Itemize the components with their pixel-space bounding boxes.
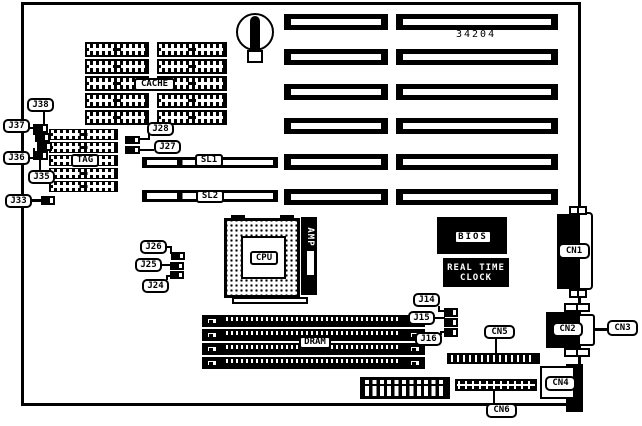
amp-strip-window [306, 250, 315, 276]
jumper-j14 [444, 308, 458, 317]
cn6-header [455, 379, 537, 391]
simm-slot-4 [202, 357, 425, 369]
mounting-lug [569, 206, 587, 215]
isa-slot-short [284, 84, 388, 100]
dip-chip [85, 59, 149, 74]
jumper-j25 [170, 262, 184, 270]
dip-chip [157, 93, 227, 108]
jumper-label-j33: J33 [5, 194, 32, 208]
isa-slot-long [396, 154, 558, 170]
jumper-label-j36: J36 [3, 151, 30, 165]
connector-label-cn4: CN4 [545, 376, 576, 391]
jumper-label-j35: J35 [28, 170, 55, 184]
jumper-j27 [125, 146, 140, 154]
jumper-label-j38: J38 [27, 98, 54, 112]
isa-slot-short [284, 49, 388, 65]
jumper-label-j25: J25 [135, 258, 162, 272]
dip-chip [157, 42, 227, 57]
isa-slot-short [284, 118, 388, 134]
rtc-label-line2: CLOCK [460, 273, 492, 283]
dip-chip [49, 168, 118, 179]
socket-lever [232, 297, 308, 304]
pointer-line [140, 149, 154, 151]
simm-clip [409, 359, 421, 367]
jumper-label-j15: J15 [408, 311, 435, 325]
pointer-line [140, 138, 150, 140]
jumper-j26 [171, 252, 185, 260]
isa-slot-short [284, 189, 388, 205]
pointer-line [495, 339, 497, 353]
mounting-lug [564, 348, 590, 357]
simm-clip [206, 359, 218, 367]
isa-slot-long [396, 49, 558, 65]
pointer-line [33, 148, 35, 159]
slot-label-sl2: SL2 [196, 190, 224, 203]
jumper-label-j28: J28 [147, 122, 174, 136]
pointer-line [43, 111, 45, 125]
jumper-j36 [37, 142, 52, 151]
jumper-j37 [35, 133, 50, 142]
connector-label-cn2: CN2 [552, 322, 583, 337]
jumper-j15 [444, 318, 458, 327]
tag-label: TAG [71, 154, 99, 167]
simm-clip [206, 317, 218, 325]
pointer-line [161, 264, 171, 266]
isa-slot-long [396, 14, 558, 30]
isa-slot-long [396, 189, 558, 205]
pointer-line [595, 328, 607, 331]
pointer-line [166, 275, 172, 277]
dip-chip [85, 93, 149, 108]
mounting-lug [564, 303, 590, 312]
isa-slot-short [284, 154, 388, 170]
dram-label: DRAM [299, 336, 331, 349]
slot-label-sl1: SL1 [195, 154, 223, 167]
jumper-label-j16: J16 [415, 332, 442, 346]
connector-label-cn6: CN6 [486, 403, 517, 418]
mounting-lug [569, 289, 587, 298]
jumper-j28 [125, 136, 140, 144]
jumper-label-j24: J24 [142, 279, 169, 293]
amp-brand-text: AMP [303, 222, 315, 252]
jumper-label-j27: J27 [154, 140, 181, 154]
pointer-line [170, 246, 172, 254]
connector-label-cn3: CN3 [607, 320, 638, 336]
battery-body [250, 16, 260, 52]
pointer-line [33, 127, 35, 135]
bios-label: BIOS [454, 230, 492, 244]
jumper-j38 [33, 124, 48, 133]
simm-clip [206, 345, 218, 353]
jumper-j24 [170, 271, 184, 279]
dip-chip [85, 42, 149, 57]
isa-slot-short [284, 14, 388, 30]
cpu-label: CPU [250, 251, 278, 265]
dip-chip [49, 181, 118, 192]
connector-label-cn5: CN5 [484, 325, 515, 339]
real-time-clock-chip: REAL TIME CLOCK [443, 258, 509, 287]
simm-clip [206, 331, 218, 339]
simm-clip [409, 345, 421, 353]
dip-chip [49, 129, 118, 140]
isa-slot-long [396, 84, 558, 100]
simm-slot-1 [202, 315, 425, 327]
jumper-label-j14: J14 [413, 293, 440, 307]
board-part-number: 34204 [456, 29, 496, 40]
cache-label: CACHE [134, 78, 175, 91]
pointer-line [434, 317, 445, 319]
jumper-j33 [41, 196, 55, 205]
cn5-header [447, 353, 540, 364]
rtc-label-line1: REAL TIME [447, 263, 505, 273]
pointer-line [438, 310, 445, 312]
pointer-line [440, 331, 445, 333]
dip-chip [157, 59, 227, 74]
pointer-line [493, 391, 495, 403]
isa-slot-long [396, 118, 558, 134]
dip-chip [49, 142, 118, 153]
jumper-label-j26: J26 [140, 240, 167, 254]
battery-base [247, 50, 263, 63]
power-connector [360, 377, 450, 399]
jumper-j16 [444, 328, 458, 337]
pointer-line [31, 199, 42, 202]
dip-chip [85, 110, 149, 125]
connector-label-cn1: CN1 [558, 243, 590, 259]
jumper-label-j37: J37 [3, 119, 30, 133]
motherboard-diagram: 34204 SL1 SL2 CACHE TAG [0, 0, 642, 426]
